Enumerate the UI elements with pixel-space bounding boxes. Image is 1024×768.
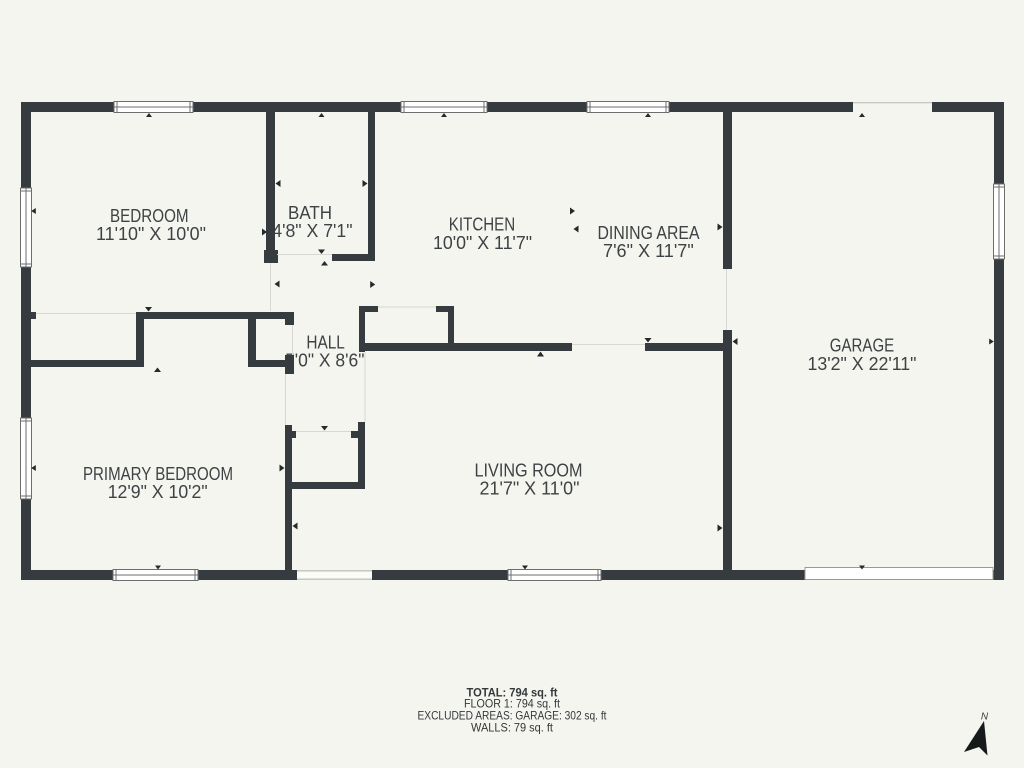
svg-text:KITCHEN: KITCHEN bbox=[449, 215, 515, 235]
svg-text:5'0" X 8'6": 5'0" X 8'6" bbox=[285, 351, 364, 371]
svg-text:21'7" X 11'0": 21'7" X 11'0" bbox=[480, 479, 580, 499]
svg-text:BEDROOM: BEDROOM bbox=[110, 206, 189, 226]
svg-text:4'8" X 7'1": 4'8" X 7'1" bbox=[272, 221, 352, 241]
svg-text:12'9" X 10'2": 12'9" X 10'2" bbox=[108, 482, 208, 502]
svg-text:LIVING ROOM: LIVING ROOM bbox=[475, 461, 583, 481]
svg-text:BATH: BATH bbox=[288, 203, 332, 223]
svg-text:7'6" X 11'7": 7'6" X 11'7" bbox=[603, 241, 694, 261]
svg-text:DINING AREA: DINING AREA bbox=[598, 223, 700, 243]
svg-text:10'0" X 11'7": 10'0" X 11'7" bbox=[433, 233, 532, 253]
svg-text:N: N bbox=[981, 712, 989, 723]
svg-text:13'2" X 22'11": 13'2" X 22'11" bbox=[808, 354, 917, 374]
svg-text:GARAGE: GARAGE bbox=[830, 335, 894, 355]
svg-text:WALLS: 79 sq. ft: WALLS: 79 sq. ft bbox=[471, 721, 554, 735]
svg-text:PRIMARY BEDROOM: PRIMARY BEDROOM bbox=[83, 464, 233, 484]
svg-text:HALL: HALL bbox=[306, 333, 345, 353]
svg-text:11'10" X 10'0": 11'10" X 10'0" bbox=[96, 224, 206, 244]
